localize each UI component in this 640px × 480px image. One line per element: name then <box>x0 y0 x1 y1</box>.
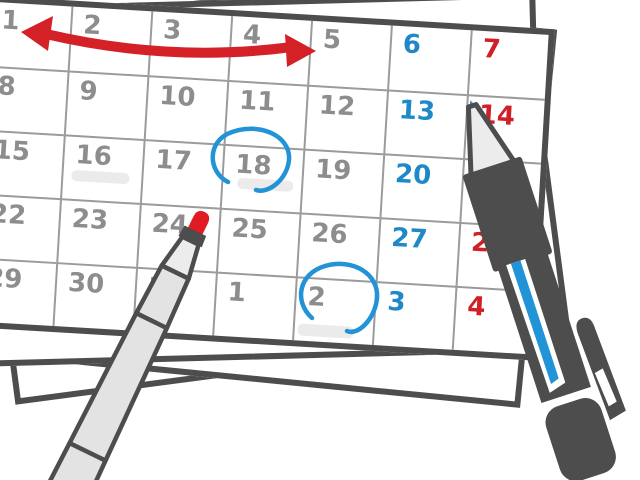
day-19-cell: 19 <box>300 149 384 218</box>
day-number: 22 <box>0 199 27 231</box>
day-26-cell: 26 <box>296 212 380 281</box>
day-number: 10 <box>158 81 196 113</box>
day-number: 1 <box>1 5 21 36</box>
day-25-cell: 25 <box>216 208 300 277</box>
day-22-cell: 22 <box>0 193 60 262</box>
day-number: 4 <box>242 20 262 51</box>
day-number: 29 <box>0 263 23 295</box>
note-bar <box>297 324 354 339</box>
pen-end-cap <box>541 394 620 480</box>
day-7-cell: 7 <box>467 30 551 99</box>
day-10-cell: 10 <box>144 75 228 144</box>
day-11-cell: 11 <box>224 80 308 149</box>
day-number: 23 <box>71 204 109 236</box>
day-number: 31 <box>147 273 185 305</box>
day-number: 3 <box>162 15 182 46</box>
day-number: 26 <box>311 218 349 250</box>
day-number: 24 <box>151 209 189 241</box>
day-number: 17 <box>155 145 193 177</box>
calendar-page-front: 1 2 3 4 5 6 7 8 9 10 11 12 13 14 15 16 1… <box>0 0 555 361</box>
day-14-cell: 14 <box>463 94 547 163</box>
day-20-cell: 20 <box>380 153 464 222</box>
day-number: 11 <box>238 86 276 118</box>
day-number: 6 <box>402 29 422 60</box>
day-number: 27 <box>390 223 428 255</box>
day-9-cell: 9 <box>64 70 148 139</box>
day-13-cell: 13 <box>383 89 467 158</box>
day-number: 15 <box>0 135 31 167</box>
pen-pocket-clip <box>571 312 630 425</box>
day-next-4-cell: 4 <box>452 286 536 355</box>
day-number: 3 <box>387 287 407 318</box>
day-number: 8 <box>0 71 17 102</box>
day-29-cell: 29 <box>0 257 56 326</box>
day-5-cell: 5 <box>307 21 391 90</box>
day-30-cell: 30 <box>52 262 136 331</box>
day-6-cell: 6 <box>387 25 471 94</box>
day-1-cell: 1 <box>0 2 71 71</box>
day-23-cell: 23 <box>56 198 140 267</box>
pen-barrel-segment <box>28 442 107 480</box>
day-2-cell: 2 <box>68 7 152 76</box>
day-number: 18 <box>234 150 272 182</box>
day-24-cell: 24 <box>136 203 220 272</box>
day-12-cell: 12 <box>303 85 387 154</box>
day-27-cell: 27 <box>376 217 460 286</box>
calendar-illustration: 1 2 3 4 5 6 7 8 9 10 11 12 13 14 15 16 1… <box>0 0 640 480</box>
day-number: 9 <box>79 76 99 107</box>
day-21-cell <box>459 158 543 227</box>
pen-clip-slot <box>594 367 617 407</box>
day-15-cell: 15 <box>0 130 64 199</box>
day-number: 13 <box>398 95 436 127</box>
day-number: 19 <box>314 154 352 186</box>
day-17-cell: 17 <box>140 139 224 208</box>
day-8-cell: 8 <box>0 66 68 135</box>
day-28-cell: 28 <box>456 222 540 291</box>
day-number: 4 <box>466 292 486 323</box>
day-3-cell: 3 <box>148 11 232 80</box>
day-16-cell: 16 <box>60 134 144 203</box>
day-number: 20 <box>394 159 432 191</box>
day-number: 28 <box>470 228 508 260</box>
day-number: 2 <box>307 282 327 313</box>
note-bar <box>237 178 294 192</box>
note-bar <box>71 170 130 184</box>
day-next-1-cell: 1 <box>212 272 296 341</box>
day-number: 1 <box>227 277 247 308</box>
day-4-cell: 4 <box>227 16 311 85</box>
day-number: 5 <box>322 25 342 56</box>
day-number: 30 <box>67 268 105 300</box>
day-18-cell: 18 <box>220 144 304 213</box>
day-number: 16 <box>75 140 113 172</box>
day-31-cell: 31 <box>132 267 216 336</box>
day-number: 2 <box>82 10 102 41</box>
calendar-grid: 1 2 3 4 5 6 7 8 9 10 11 12 13 14 15 16 1… <box>0 2 551 355</box>
day-number: 14 <box>478 100 516 132</box>
day-next-2-cell: 2 <box>292 276 376 345</box>
day-number: 25 <box>231 213 269 245</box>
day-number: 12 <box>318 90 356 122</box>
day-next-3-cell: 3 <box>372 281 456 350</box>
day-number: 7 <box>482 34 502 65</box>
